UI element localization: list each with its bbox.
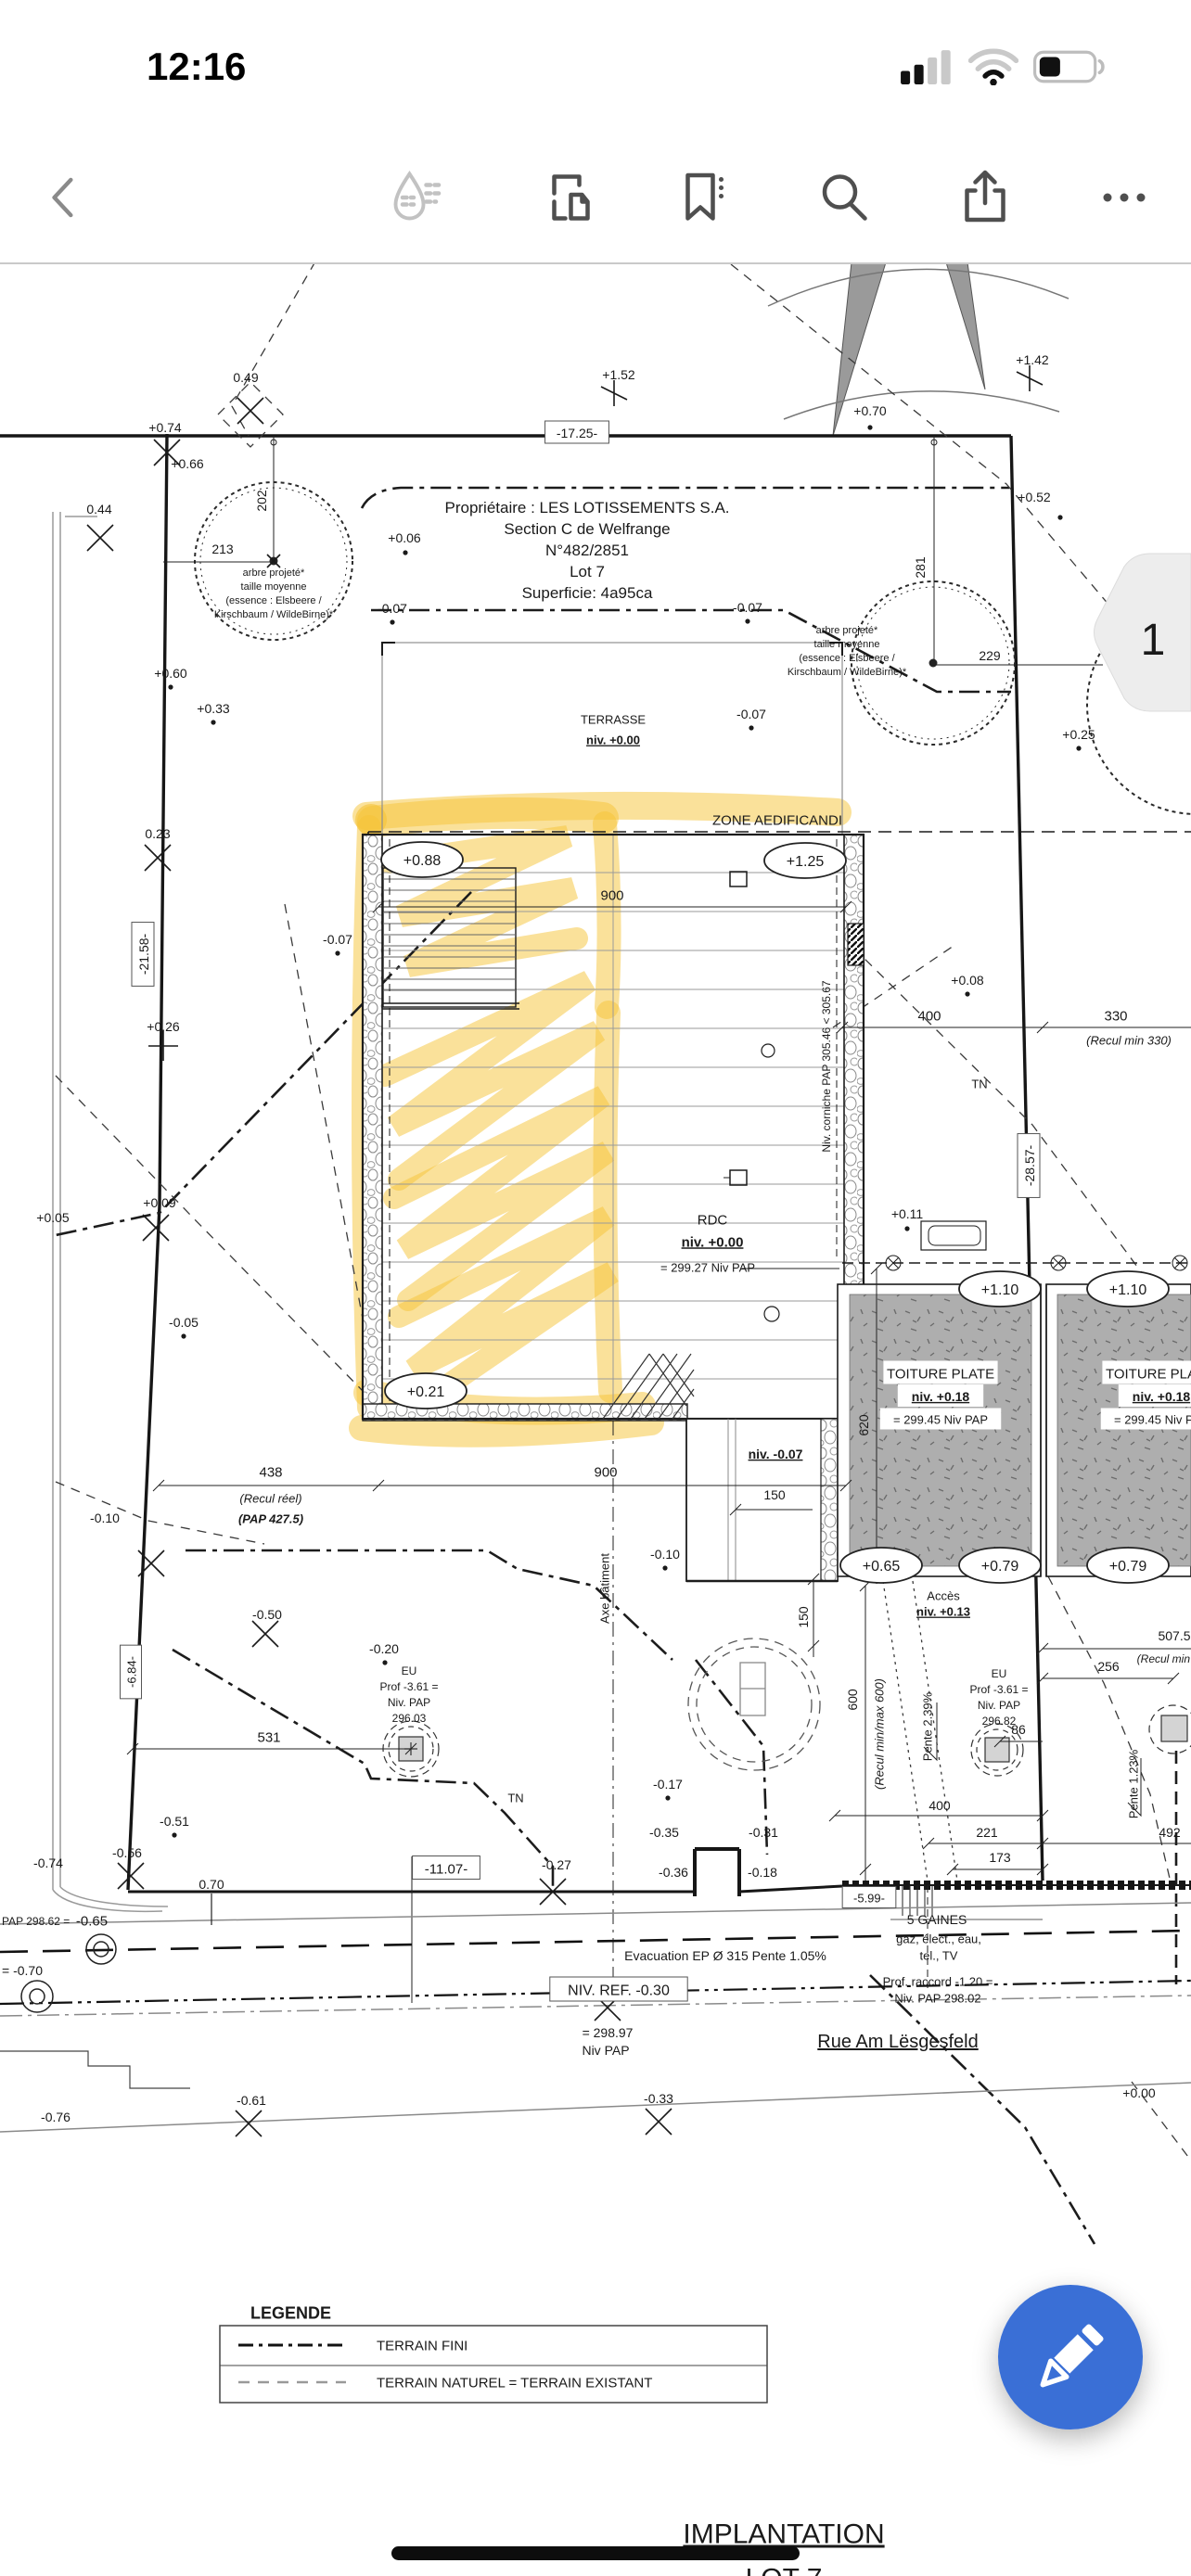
plan-label: +0.08 (951, 973, 984, 988)
plan-label: -0.51 (160, 1814, 189, 1829)
svg-text:Niv. corniche PAP 305.46 < 305: Niv. corniche PAP 305.46 < 305.67 (820, 980, 833, 1152)
svg-text:+0.65: +0.65 (863, 1559, 901, 1575)
plan-label: -6.84- (121, 1645, 142, 1699)
plan-label: -21.58- (132, 923, 154, 987)
svg-text:+0.60: +0.60 (154, 666, 187, 681)
svg-text:400: 400 (928, 1798, 951, 1813)
plan-label: Kirschbaum / WildeBirne)* (214, 609, 334, 620)
svg-text:-11.07-: -11.07- (425, 1861, 467, 1877)
page-badge[interactable]: 1 (1095, 554, 1191, 711)
plan-label: +0.74 (148, 420, 182, 435)
svg-text:900: 900 (594, 1464, 617, 1480)
plan-label: +0.70 (853, 403, 887, 418)
plan-label: -0.36 (659, 1865, 688, 1880)
svg-text:+1.10: +1.10 (1109, 1282, 1147, 1298)
plan-label: 173 (989, 1850, 1011, 1865)
plan-label: +1.42 (1016, 352, 1049, 367)
svg-text:Propriétaire : LES LOTISSEMENT: Propriétaire : LES LOTISSEMENTS S.A. (444, 499, 729, 516)
plan-label: -0.76 (41, 2110, 70, 2124)
plan-label: ZONE AEDIFICANDI (712, 812, 842, 828)
plan-label: niv. +0.00 (586, 733, 640, 747)
plan-label: -0.33 (644, 2091, 673, 2106)
svg-text:+0.52: +0.52 (1018, 490, 1051, 504)
plan-label: Niv PAP (582, 2043, 629, 2058)
plan-label: EU (402, 1664, 417, 1677)
plan-label: (Recul réel) (239, 1492, 301, 1506)
svg-text:492: 492 (1159, 1825, 1181, 1840)
plan-label: 281 (913, 556, 928, 579)
svg-text:86: 86 (1011, 1722, 1026, 1737)
plan-label: +0.66 (171, 456, 204, 471)
svg-text:-0.07: -0.07 (736, 707, 766, 721)
plan-label: 5 GAINES (907, 1912, 967, 1927)
svg-text:+1.42: +1.42 (1016, 352, 1049, 367)
plan-label: +0.06 (388, 530, 421, 545)
svg-text:+0.79: +0.79 (1109, 1559, 1147, 1575)
plan-label: 0.49 (233, 370, 258, 385)
svg-text:(essence : Elsbeere /: (essence : Elsbeere / (225, 595, 322, 606)
plan-label: 256 (1097, 1659, 1120, 1674)
svg-text:-0.27: -0.27 (542, 1857, 571, 1872)
dimension-lines (127, 436, 1191, 2003)
plan-label: Lot 7 (570, 563, 605, 580)
svg-text:= 299.27 Niv PAP: = 299.27 Niv PAP (660, 1261, 755, 1275)
svg-text:438: 438 (259, 1464, 282, 1480)
plan-label: 400 (917, 1008, 941, 1024)
projected-trees (195, 482, 1191, 814)
plan-label: -5.99- (842, 1887, 896, 1908)
plan-label: -17.25- (545, 421, 609, 443)
plan-label: Evacuation EP Ø 315 Pente 1.05% (624, 1948, 826, 1963)
level-oval: +0.79 (1087, 1548, 1169, 1583)
level-oval: +1.10 (1087, 1271, 1169, 1307)
svg-text:niv. +0.00: niv. +0.00 (682, 1234, 744, 1250)
battery-icon (1033, 48, 1111, 85)
svg-text:507.5: 507.5 (1158, 1628, 1190, 1643)
svg-text:Kirschbaum / WildeBirne)*: Kirschbaum / WildeBirne)* (214, 609, 334, 620)
svg-text:+0.05: +0.05 (36, 1210, 70, 1225)
plan-label: +0.60 (154, 666, 187, 681)
plan-label: N°482/2851 (545, 542, 629, 559)
plan-label: +0.09 (143, 1195, 176, 1210)
plan-label: TERRASSE (581, 713, 646, 727)
plan-label: -0.10 (650, 1547, 680, 1562)
plan-label: 150 (796, 1606, 811, 1628)
plan-label: TERRAIN NATUREL = TERRAIN EXISTANT (377, 2375, 652, 2391)
status-time: 12:16 (147, 45, 246, 89)
plan-label: Niv. PAP (388, 1696, 430, 1709)
plan-label: 600 (845, 1689, 860, 1711)
plan-label: niv. +0.00 (682, 1234, 744, 1250)
plan-label: = 299.27 Niv PAP (660, 1261, 755, 1275)
svg-text:ZONE AEDIFICANDI: ZONE AEDIFICANDI (712, 812, 842, 828)
plan-label: 620 (856, 1414, 871, 1436)
plan-label: 86 (1011, 1722, 1026, 1737)
share-button[interactable] (950, 156, 1020, 239)
plan-label: Niv. PAP 298.02 (894, 1992, 980, 2006)
svg-text:Section C de Welfrange: Section C de Welfrange (504, 520, 670, 538)
plan-label: NIV. REF. -0.30 (550, 1977, 687, 2001)
markup-ink-button[interactable] (384, 156, 455, 239)
svg-text:+0.06: +0.06 (388, 530, 421, 545)
svg-text:-0.51: -0.51 (160, 1814, 189, 1829)
plan-label: -0.20 (369, 1641, 399, 1656)
svg-text:TOITURE PLATE: TOITURE PLATE (887, 1366, 994, 1382)
svg-text:arbre projeté*: arbre projeté* (816, 625, 878, 636)
svg-text:-0.07: -0.07 (378, 601, 407, 616)
plan-label: (Recul min/max 600) (873, 1678, 887, 1790)
svg-text:+0.88: +0.88 (403, 853, 442, 869)
svg-text:Superficie: 4a95ca: Superficie: 4a95ca (522, 584, 653, 602)
plan-label: Kirschbaum / WildeBirne)* (788, 667, 907, 678)
site-plan: +0.88+1.25+0.21+1.10+1.10+0.65+0.79+0.79… (0, 0, 1191, 2576)
plan-label: niv. -0.07 (749, 1447, 803, 1461)
svg-text:+0.66: +0.66 (171, 456, 204, 471)
wifi-icon (968, 48, 1018, 85)
home-indicator[interactable] (391, 2546, 800, 2560)
svg-text:(Recul réel): (Recul réel) (239, 1492, 301, 1506)
plan-label: -0.07 (323, 932, 352, 947)
plan-label: (Recul min 330) (1086, 1034, 1172, 1048)
hedge-lines (53, 512, 168, 1911)
plan-label: niv. +0.13 (916, 1605, 970, 1619)
plan-label: 900 (600, 887, 623, 903)
svg-text:-0.10: -0.10 (650, 1547, 680, 1562)
plan-label: 0.44 (86, 502, 111, 516)
plan-label: 213 (211, 542, 234, 556)
svg-text:202: 202 (254, 490, 269, 512)
plan-label: Prof -3.61 = (379, 1680, 438, 1693)
flat-roofs (838, 1284, 1191, 1576)
svg-text:0.70: 0.70 (198, 1877, 224, 1892)
plan-label: +0.25 (1062, 727, 1095, 742)
svg-text:Pente 1.23%: Pente 1.23% (1127, 1749, 1141, 1818)
svg-text:niv. +0.00: niv. +0.00 (586, 733, 640, 747)
plan-label: gaz, élect., eau, (896, 1932, 981, 1946)
plan-label: niv. +0.18 (898, 1384, 983, 1407)
plan-label: niv. +0.18 (1119, 1384, 1191, 1407)
plan-label: = 299.45 Niv PAP (1101, 1409, 1191, 1430)
svg-text:+0.00: +0.00 (1122, 2085, 1156, 2100)
cellular-icon (900, 49, 954, 84)
annotate-fab-button[interactable] (998, 2285, 1143, 2429)
plan-label: TOITURE PLATE (1102, 1361, 1191, 1384)
plan-label: TERRAIN FINI (377, 2338, 467, 2353)
svg-text:+0.79: +0.79 (981, 1559, 1019, 1575)
iphone-screen: +0.88+1.25+0.21+1.10+1.10+0.65+0.79+0.79… (0, 0, 1191, 2576)
plan-label: TN (507, 1792, 523, 1805)
plan-label: -0.05 (169, 1315, 198, 1330)
north-arrow-icon (768, 262, 1069, 436)
plan-label: 221 (976, 1825, 998, 1840)
svg-text:-0.10: -0.10 (90, 1511, 120, 1525)
svg-text:Niv. PAP: Niv. PAP (978, 1699, 1020, 1712)
svg-text:Lot 7: Lot 7 (570, 563, 605, 580)
plan-label: -0.35 (649, 1825, 679, 1840)
svg-text:niv. +0.18: niv. +0.18 (1133, 1389, 1191, 1404)
svg-text:-0.18: -0.18 (748, 1865, 777, 1880)
plan-label: Rue Am Lësgesfeld (817, 2032, 978, 2052)
svg-text:LOT 7: LOT 7 (746, 2564, 823, 2576)
plan-label: +1.52 (602, 367, 635, 382)
svg-text:(PAP 427.5): (PAP 427.5) (238, 1512, 303, 1526)
plan-label: 438 (259, 1464, 282, 1480)
svg-text:281: 281 (913, 556, 928, 579)
svg-text:tel., TV: tel., TV (920, 1949, 958, 1963)
plan-label: (PAP 427.5) (238, 1512, 303, 1526)
plan-label: 507.5 (1158, 1628, 1190, 1643)
svg-text:-0.65: -0.65 (76, 1913, 108, 1929)
svg-text:-0.35: -0.35 (649, 1825, 679, 1840)
plan-label: Niv. PAP (978, 1699, 1020, 1712)
svg-text:+0.26: +0.26 (147, 1019, 180, 1034)
plan-label: -11.07- (413, 1856, 480, 1880)
plan-label: -0.65 (76, 1913, 108, 1929)
svg-text:TOITURE PLATE: TOITURE PLATE (1106, 1366, 1191, 1382)
svg-text:229: 229 (979, 648, 1001, 663)
plan-label: Pente 2.39% (921, 1691, 935, 1761)
svg-text:296.03: 296.03 (392, 1712, 427, 1725)
plan-label: -0.07 (736, 707, 766, 721)
svg-text:taille moyenne: taille moyenne (814, 639, 880, 650)
page-versions-button[interactable] (534, 156, 605, 239)
plan-label: IMPLANTATION (683, 2519, 884, 2550)
svg-text:IMPLANTATION: IMPLANTATION (683, 2519, 884, 2550)
svg-text:Prof. raccord -1.20 =: Prof. raccord -1.20 = (883, 1975, 993, 1989)
plan-label: Pente 1.23% (1127, 1749, 1141, 1818)
svg-text:256: 256 (1097, 1659, 1120, 1674)
svg-text:Kirschbaum / WildeBirne)*: Kirschbaum / WildeBirne)* (788, 667, 907, 678)
plan-label: 150 (763, 1487, 786, 1502)
svg-text:Prof -3.61 =: Prof -3.61 = (379, 1680, 438, 1693)
plan-label: TOITURE PLATE (883, 1361, 997, 1384)
svg-text:= -0.70: = -0.70 (2, 1963, 43, 1978)
svg-text:Rue Am Lësgesfeld: Rue Am Lësgesfeld (817, 2032, 978, 2052)
svg-text:(essence : Elsbeere /: (essence : Elsbeere / (799, 653, 895, 664)
svg-text:NIV. REF. -0.30: NIV. REF. -0.30 (568, 1983, 670, 1999)
svg-text:-0.07: -0.07 (733, 600, 762, 615)
svg-text:+0.21: +0.21 (407, 1384, 445, 1400)
svg-text:+0.09: +0.09 (143, 1195, 176, 1210)
plan-label: LEGENDE (250, 2303, 331, 2322)
plan-label: EU (992, 1667, 1007, 1680)
svg-text:EU: EU (402, 1664, 417, 1677)
svg-text:213: 213 (211, 542, 234, 556)
plan-label: tel., TV (920, 1949, 958, 1963)
svg-text:EU: EU (992, 1667, 1007, 1680)
svg-text:+1.25: +1.25 (787, 854, 825, 870)
svg-text:+1.52: +1.52 (602, 367, 635, 382)
svg-text:= 298.97: = 298.97 (583, 2025, 634, 2040)
svg-text:Niv. PAP: Niv. PAP (388, 1696, 430, 1709)
svg-text:Pente 2.39%: Pente 2.39% (921, 1691, 935, 1761)
svg-text:531: 531 (257, 1729, 280, 1745)
plan-label: Section C de Welfrange (504, 520, 670, 538)
svg-text:Niv. PAP 298.02: Niv. PAP 298.02 (894, 1992, 980, 2006)
plan-label: +0.05 (36, 1210, 70, 1225)
plan-label: -0.50 (252, 1607, 282, 1622)
svg-text:LEGENDE: LEGENDE (250, 2303, 331, 2322)
svg-text:TERRAIN FINI: TERRAIN FINI (377, 2338, 467, 2353)
level-oval: +0.65 (840, 1548, 922, 1583)
svg-text:taille moyenne: taille moyenne (241, 581, 307, 593)
level-oval: +1.25 (764, 843, 846, 878)
plan-label: taille moyenne (814, 639, 880, 650)
svg-text:TERRASSE: TERRASSE (581, 713, 646, 727)
svg-text:-0.07: -0.07 (323, 932, 352, 947)
svg-text:niv. +0.18: niv. +0.18 (912, 1389, 970, 1404)
svg-text:RDC: RDC (698, 1212, 728, 1228)
svg-text:TN: TN (507, 1792, 523, 1805)
svg-text:PAP 298.62 =: PAP 298.62 = (2, 1915, 70, 1928)
svg-text:TERRAIN NATUREL = TERRAIN EXIS: TERRAIN NATUREL = TERRAIN EXISTANT (377, 2375, 652, 2391)
plan-label: PAP 298.62 = (2, 1915, 70, 1928)
plan-label: arbre projeté* (816, 625, 878, 636)
page-badge-number: 1 (1141, 616, 1166, 665)
plan-label: -0.74 (33, 1855, 63, 1870)
plan-label: Niv. corniche PAP 305.46 < 305.67 (820, 980, 833, 1152)
legend (220, 2326, 767, 2403)
plan-label: TN (971, 1078, 987, 1091)
svg-text:Evacuation EP Ø 315 Pente 1.0: Evacuation EP Ø 315 Pente 1.05% (624, 1948, 826, 1963)
plan-label: 330 (1104, 1008, 1127, 1024)
svg-text:Accès: Accès (927, 1589, 960, 1603)
svg-text:173: 173 (989, 1850, 1011, 1865)
plan-label: -0.18 (748, 1865, 777, 1880)
svg-text:-17.25-: -17.25- (557, 426, 598, 440)
plan-label: taille moyenne (241, 581, 307, 593)
bookmark-button[interactable] (668, 156, 738, 239)
back-button[interactable] (30, 156, 100, 239)
plan-label: -0.56 (112, 1845, 142, 1860)
more-button[interactable] (1089, 156, 1159, 239)
plan-label: 0.23 (145, 826, 170, 841)
plan-label: (Recul min 500) (1137, 1652, 1191, 1665)
plan-label: (essence : Elsbeere / (225, 595, 322, 606)
svg-text:-5.99-: -5.99- (853, 1892, 885, 1906)
top-chrome: 12:16 (0, 0, 1191, 264)
svg-text:= 299.45 Niv PAP: = 299.45 Niv PAP (893, 1413, 988, 1427)
svg-text:+0.74: +0.74 (148, 420, 182, 435)
plan-label: 296.03 (392, 1712, 427, 1725)
svg-text:TN: TN (971, 1078, 987, 1091)
svg-text:+0.33: +0.33 (197, 701, 230, 716)
svg-text:-0.36: -0.36 (659, 1865, 688, 1880)
svg-text:N°482/2851: N°482/2851 (545, 542, 629, 559)
svg-text:-0.05: -0.05 (169, 1315, 198, 1330)
plan-label: +0.52 (1018, 490, 1051, 504)
svg-text:(Recul min/max 600): (Recul min/max 600) (873, 1678, 887, 1790)
plan-label: +0.00 (1122, 2085, 1156, 2100)
svg-text:400: 400 (917, 1008, 941, 1024)
svg-text:Niv PAP: Niv PAP (582, 2043, 629, 2058)
svg-text:-21.58-: -21.58- (136, 933, 151, 975)
eu-manholes (383, 1705, 1191, 1777)
plan-label: +0.26 (147, 1019, 180, 1034)
plan-label: 400 (928, 1798, 951, 1813)
plan-label: = -0.70 (2, 1963, 43, 1978)
plan-label: -0.31 (749, 1825, 778, 1840)
svg-text:(Recul min 330): (Recul min 330) (1086, 1034, 1172, 1048)
svg-text:(Recul min 500): (Recul min 500) (1137, 1652, 1191, 1665)
svg-text:niv. -0.07: niv. -0.07 (749, 1447, 803, 1461)
svg-text:-0.17: -0.17 (653, 1777, 683, 1792)
plan-label: 492 (1159, 1825, 1181, 1840)
existing-tree (688, 1639, 820, 1770)
svg-text:-0.33: -0.33 (644, 2091, 673, 2106)
svg-text:150: 150 (796, 1606, 811, 1628)
level-oval: +0.79 (959, 1548, 1041, 1583)
svg-text:-6.84-: -6.84- (125, 1656, 139, 1688)
plan-label: 900 (594, 1464, 617, 1480)
plan-label: Prof. raccord -1.20 = (883, 1975, 993, 1989)
svg-text:arbre projeté*: arbre projeté* (243, 567, 305, 579)
plan-label: 531 (257, 1729, 280, 1745)
svg-text:5 GAINES: 5 GAINES (907, 1912, 967, 1927)
svg-text:150: 150 (763, 1487, 786, 1502)
svg-text:+1.10: +1.10 (981, 1282, 1019, 1298)
plan-label: -28.57- (1018, 1134, 1040, 1198)
plan-label: (essence : Elsbeere / (799, 653, 895, 664)
svg-text:221: 221 (976, 1825, 998, 1840)
plan-label: RDC (698, 1212, 728, 1228)
plan-label: 0.70 (198, 1877, 224, 1892)
svg-text:600: 600 (845, 1689, 860, 1711)
svg-text:-0.61: -0.61 (237, 2093, 266, 2108)
plan-label: 202 (254, 490, 269, 512)
search-button[interactable] (809, 156, 879, 239)
plan-label: 229 (979, 648, 1001, 663)
svg-text:+0.11: +0.11 (891, 1206, 924, 1221)
svg-text:900: 900 (600, 887, 623, 903)
svg-text:0.44: 0.44 (86, 502, 111, 516)
survey-marks (87, 365, 1082, 2136)
svg-text:Prof -3.61 =: Prof -3.61 = (969, 1683, 1028, 1696)
svg-text:0.49: 0.49 (233, 370, 258, 385)
plan-label: -0.27 (542, 1857, 571, 1872)
plan-label: arbre projeté* (243, 567, 305, 579)
plan-label: +0.11 (891, 1206, 924, 1221)
road (0, 1894, 1191, 2132)
plan-label: Accès (927, 1589, 960, 1603)
svg-text:-0.31: -0.31 (749, 1825, 778, 1840)
plan-label: LOT 7 (746, 2564, 823, 2576)
plan-label: -0.61 (237, 2093, 266, 2108)
level-oval: +1.10 (959, 1271, 1041, 1307)
plan-label: -0.17 (653, 1777, 683, 1792)
plan-label: -0.07 (378, 601, 407, 616)
svg-text:330: 330 (1104, 1008, 1127, 1024)
svg-text:+0.70: +0.70 (853, 403, 887, 418)
plan-label: -0.07 (733, 600, 762, 615)
svg-text:-28.57-: -28.57- (1022, 1144, 1037, 1186)
svg-text:-0.56: -0.56 (112, 1845, 142, 1860)
svg-text:Axe bâtiment: Axe bâtiment (598, 1553, 612, 1624)
svg-text:620: 620 (856, 1414, 871, 1436)
svg-text:0.23: 0.23 (145, 826, 170, 841)
svg-text:= 299.45 Niv PAP: = 299.45 Niv PAP (1114, 1413, 1191, 1427)
svg-text:+0.25: +0.25 (1062, 727, 1095, 742)
level-oval: +0.21 (385, 1373, 467, 1409)
svg-text:-0.74: -0.74 (33, 1855, 63, 1870)
plan-label: +0.33 (197, 701, 230, 716)
plan-label: Propriétaire : LES LOTISSEMENTS S.A. (444, 499, 729, 516)
plan-label: Axe bâtiment (598, 1553, 612, 1624)
svg-text:-0.20: -0.20 (369, 1641, 399, 1656)
plan-label: Prof -3.61 = (969, 1683, 1028, 1696)
plan-label: = 298.97 (583, 2025, 634, 2040)
plan-label: -0.10 (90, 1511, 120, 1525)
